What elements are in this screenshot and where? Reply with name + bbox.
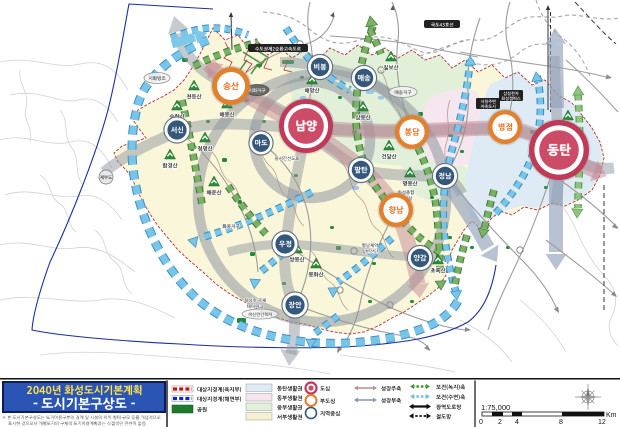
svg-text:0: 0 — [479, 419, 483, 426]
svg-text:2: 2 — [498, 419, 502, 426]
svg-text:12: 12 — [598, 419, 606, 426]
svg-text:Km: Km — [606, 412, 617, 419]
svg-text:1:75,000: 1:75,000 — [481, 403, 510, 412]
svg-text:4: 4 — [515, 419, 519, 426]
svg-text:8: 8 — [559, 419, 563, 426]
